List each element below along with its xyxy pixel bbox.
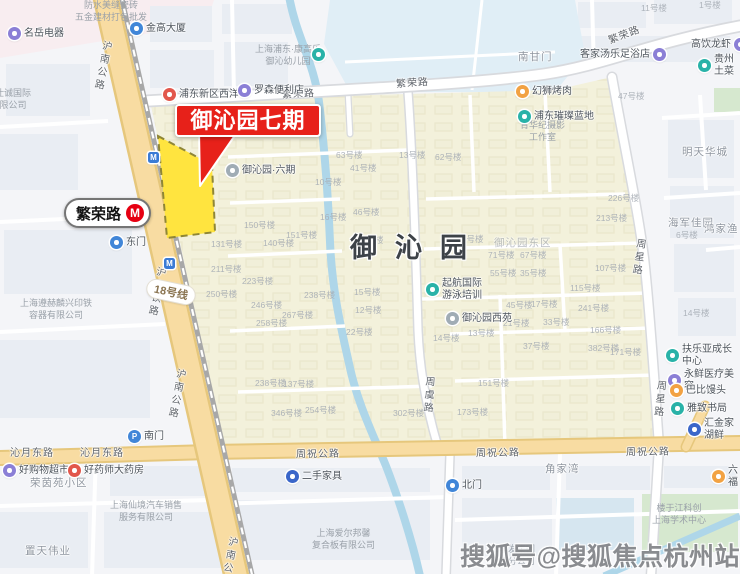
poi-label: 幻狮烤肉 — [532, 86, 572, 98]
project-callout: 御沁园七期 — [175, 104, 321, 137]
poi-pin-icon — [688, 423, 701, 436]
poi-label: 起航国际游泳培训 — [442, 278, 482, 301]
road-label: 沪南公路 — [165, 367, 186, 420]
poi: 罗森便利店 — [238, 84, 304, 97]
building-label: 223号楼 — [242, 277, 273, 286]
building-label: 11号楼 — [641, 4, 667, 13]
building-label: 13号楼 — [468, 329, 494, 338]
poi: 客家汤乐足浴店 — [580, 48, 666, 61]
building-label: 107号楼 — [595, 264, 626, 273]
watermark: 搜狐号@搜狐焦点杭州站 — [460, 537, 740, 573]
poi: 高饮龙虾 — [691, 38, 740, 51]
building-label: 15号楼 — [354, 288, 380, 297]
building-label: 238号楼 — [255, 379, 286, 388]
poi-pin-icon — [130, 22, 143, 35]
building-label: 267号楼 — [282, 311, 313, 320]
poi: 好购物超市 — [3, 464, 69, 477]
road-label: 周星路 — [629, 237, 645, 277]
poi: 起航国际游泳培训 — [426, 278, 482, 301]
poi-label: 好药师大药房 — [84, 465, 144, 477]
metro-entrance-icon — [164, 258, 175, 269]
building-label: 171号楼 — [610, 348, 641, 357]
area-label: 鸿家渔 — [704, 224, 739, 236]
poi-label: 巴比馒头 — [686, 385, 726, 397]
road-label: 周祝公路 — [476, 448, 520, 460]
poi-label: 御沁园·六期 — [242, 165, 295, 177]
poi-pin-icon — [666, 349, 679, 362]
building-label: 67号楼 — [520, 251, 546, 260]
building-label: 166号楼 — [590, 326, 621, 335]
poi-label: 金高大厦 — [146, 23, 186, 35]
poi-pin-icon — [68, 464, 81, 477]
poi-label: 雅致书局 — [687, 403, 727, 415]
building-label: 16号楼 — [320, 213, 346, 222]
poi-pin-icon — [286, 470, 299, 483]
poi-label: 客家汤乐足浴店 — [580, 49, 650, 61]
poi: 幻狮烤肉 — [516, 85, 572, 98]
poi: 金高大厦 — [130, 22, 186, 35]
poi-pin-icon — [446, 479, 459, 492]
poi: 雅致书局 — [671, 402, 727, 415]
building-label: 137号楼 — [283, 380, 314, 389]
poi-label: 御沁园西苑 — [462, 313, 512, 325]
poi-pin-icon — [653, 48, 666, 61]
poi: 贵州土菜 — [698, 54, 740, 77]
company-label: 上海仙境汽车销售服务有限公司 — [110, 500, 182, 523]
building-label: 150号楼 — [244, 221, 275, 230]
poi-pin-icon — [670, 384, 683, 397]
building-label: 131号楼 — [211, 240, 242, 249]
poi-pin-icon — [698, 59, 711, 72]
company-label: 楼于江科创上海学术中心 — [652, 503, 706, 526]
poi-label: 浦东新区西洋 — [179, 89, 239, 101]
poi: P南门 — [128, 430, 164, 443]
area-label: 置天伟业 — [25, 546, 71, 558]
poi: 东门 — [110, 236, 146, 249]
poi-pin-icon: P — [128, 430, 141, 443]
poi-label: 浦东璀璨蓝地 — [534, 111, 594, 123]
area-label: 御沁园东区 — [494, 238, 552, 250]
poi-pin-icon — [671, 402, 684, 415]
poi: 巴比馒头 — [670, 384, 726, 397]
building-label: 302号楼 — [393, 409, 424, 418]
building-label: 14号楼 — [683, 309, 709, 318]
poi: 名岳电器 — [8, 27, 64, 40]
poi: 二手家具 — [286, 470, 342, 483]
poi-label: 北门 — [462, 480, 482, 492]
building-label: 45号楼 — [506, 301, 532, 310]
poi-label: 六福 — [728, 465, 740, 488]
area-label: 南甘门 — [518, 52, 553, 64]
map-canvas[interactable]: 沪南公路沪南公路沪南铁路沪南公路繁荣路繁荣路繁荣路周祝公路周祝公路周祝公路沁月东… — [0, 0, 740, 574]
road-label: 周祝公路 — [626, 447, 670, 459]
poi-pin-icon — [516, 85, 529, 98]
poi: 北门 — [446, 479, 482, 492]
road-label: 沪南公路 — [91, 39, 112, 92]
poi: 御沁园·六期 — [226, 164, 295, 177]
poi-pin-icon — [312, 48, 325, 61]
poi — [164, 258, 175, 269]
poi-pin-icon — [238, 84, 251, 97]
company-label: 防水美缝瓷砖五金建材打包批发 — [75, 0, 147, 23]
label-layer: 沪南公路沪南公路沪南铁路沪南公路繁荣路繁荣路繁荣路周祝公路周祝公路周祝公路沁月东… — [0, 0, 740, 574]
road-label: 繁荣路 — [607, 24, 642, 46]
poi — [148, 152, 159, 163]
building-label: 62号楼 — [435, 153, 461, 162]
building-label: 14号楼 — [433, 334, 459, 343]
building-label: 35号楼 — [520, 269, 546, 278]
poi-label: 南门 — [144, 431, 164, 443]
poi: 六福 — [712, 465, 740, 488]
poi-label: 高饮龙虾 — [691, 39, 731, 51]
estate-name-label: 御沁园 — [350, 226, 485, 265]
company-label: 青华纪摄影工作室 — [520, 120, 565, 143]
building-label: 13号楼 — [399, 151, 425, 160]
poi: 御沁园西苑 — [446, 312, 512, 325]
building-label: 10号楼 — [315, 178, 341, 187]
building-label: 241号楼 — [578, 304, 609, 313]
poi-pin-icon — [446, 312, 459, 325]
poi-pin-icon — [426, 283, 439, 296]
building-label: 71号楼 — [488, 251, 514, 260]
poi-pin-icon — [734, 38, 740, 51]
poi: 扶乐亚成长中心 — [666, 344, 740, 367]
area-label: 荣茵苑小区 — [30, 478, 88, 490]
building-label: 47号楼 — [618, 92, 644, 101]
building-label: 151号楼 — [478, 379, 509, 388]
poi-pin-icon — [3, 464, 16, 477]
building-label: 1号楼 — [699, 1, 721, 10]
road-label: 周星路 — [651, 380, 666, 420]
road-label: 沁月东路 — [80, 448, 124, 459]
company-label: 万仕诚国际有限公司 — [0, 88, 31, 111]
poi-label: 好购物超市 — [19, 465, 69, 477]
building-label: 211号楼 — [211, 265, 242, 274]
poi-label: 贵州土菜 — [714, 54, 740, 77]
poi: 浦东新区西洋 — [163, 88, 239, 101]
poi-pin-icon — [163, 88, 176, 101]
building-label: 37号楼 — [523, 342, 549, 351]
area-label: 角家湾 — [545, 464, 580, 476]
poi-pin-icon — [226, 164, 239, 177]
road-label: 周祝公路 — [296, 449, 340, 461]
building-label: 63号楼 — [336, 151, 362, 160]
building-label: 151号楼 — [286, 231, 317, 240]
company-label: 上海遵赫麟兴印铁容器有限公司 — [20, 298, 92, 321]
poi-label: 汇金家湖鲜 — [704, 418, 740, 441]
metro-station-name: 繁荣路 — [76, 203, 121, 224]
building-label: 226号楼 — [608, 194, 639, 203]
poi-label: 名岳电器 — [24, 28, 64, 40]
metro-entrance-icon — [148, 152, 159, 163]
building-label: 238号楼 — [304, 291, 335, 300]
poi-label: 罗森便利店 — [254, 85, 304, 97]
building-label: 246号楼 — [251, 301, 282, 310]
building-label: 41号楼 — [350, 164, 376, 173]
poi-label: 二手家具 — [302, 471, 342, 483]
road-label: 繁荣路 — [396, 77, 430, 90]
company-label: 上海爱尔邦馨复合板有限公司 — [312, 528, 375, 551]
shanghai-metro-logo-icon: M — [126, 204, 144, 222]
building-label: 17号楼 — [531, 300, 557, 309]
building-label: 46号楼 — [353, 208, 379, 217]
poi: 好药师大药房 — [68, 464, 144, 477]
building-label: 346号楼 — [271, 409, 302, 418]
building-label: 12号楼 — [355, 306, 381, 315]
poi-pin-icon — [8, 27, 21, 40]
road-label: 沁月东路 — [10, 448, 54, 459]
building-label: 213号楼 — [596, 214, 627, 223]
poi: 浦东璀璨蓝地 — [518, 110, 594, 123]
building-label: 33号楼 — [543, 318, 569, 327]
road-label: 沪南公路 — [217, 535, 238, 574]
poi — [312, 48, 325, 61]
poi-pin-icon — [712, 470, 725, 483]
building-label: 173号楼 — [457, 408, 488, 417]
building-label: 254号楼 — [305, 406, 336, 415]
building-label: 55号楼 — [490, 269, 516, 278]
building-label: 250号楼 — [206, 290, 237, 299]
poi-pin-icon — [110, 236, 123, 249]
metro-station-badge: 繁荣路 M — [64, 198, 151, 228]
building-label: 115号楼 — [570, 284, 601, 293]
poi-label: 扶乐亚成长中心 — [682, 344, 740, 367]
poi: 汇金家湖鲜 — [688, 418, 740, 441]
building-label: 140号楼 — [263, 239, 294, 248]
poi-pin-icon — [518, 110, 531, 123]
poi-label: 东门 — [126, 237, 146, 249]
building-label: 22号楼 — [346, 328, 372, 337]
area-label: 明天华城 — [682, 147, 728, 159]
building-label: 6号楼 — [676, 231, 698, 240]
building-label: 258号楼 — [256, 319, 287, 328]
